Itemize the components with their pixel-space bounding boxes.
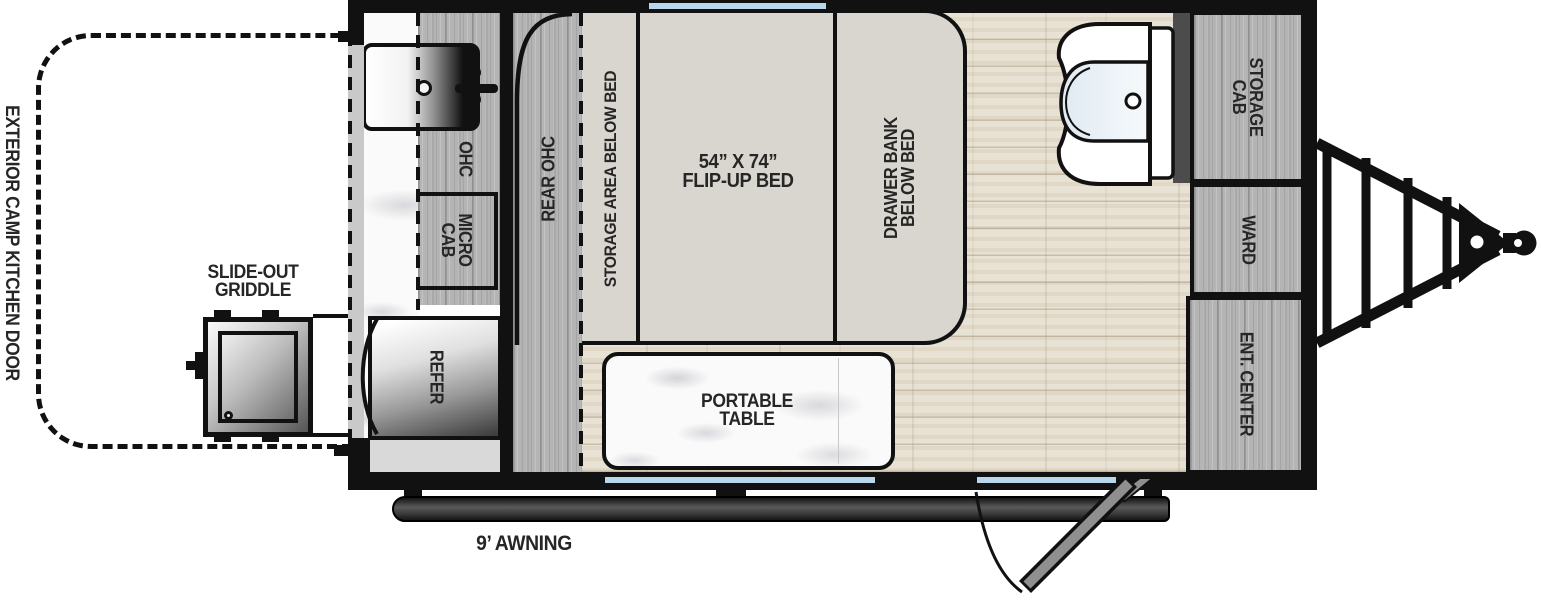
refer-label: REFER xyxy=(427,350,444,404)
bed-window xyxy=(647,1,828,11)
faucet-knob-bottom xyxy=(468,93,481,106)
entry-door-window xyxy=(975,475,1118,485)
rear-ohc-label: REAR OHC xyxy=(540,136,557,221)
ohc-label: OHC xyxy=(456,141,473,177)
tongue-jack xyxy=(1470,235,1485,250)
micro-cab-label: MICRO CAB xyxy=(439,213,473,266)
floorplan-canvas: EXTERIOR CAMP KITCHEN DOOR SLIDE-OUT GRI… xyxy=(0,0,1541,600)
hitch-coupler xyxy=(1512,231,1537,256)
bed-divider-left xyxy=(636,13,640,341)
storage-cab-label: STORAGE CAB xyxy=(1230,57,1264,136)
awning-bar xyxy=(392,496,1170,522)
slide-out-griddle-label: SLIDE-OUT GRIDDLE xyxy=(208,264,299,300)
rear-wall-interior xyxy=(500,13,513,472)
exterior-camp-kitchen-door-label: EXTERIOR CAMP KITCHEN DOOR xyxy=(2,105,20,381)
awning-label: 9’ AWNING xyxy=(476,534,572,554)
griddle-knob xyxy=(224,411,233,420)
ent-center-label: ENT. CENTER xyxy=(1237,332,1254,437)
griddle-inner-door xyxy=(218,331,298,423)
rear-ohc-cabinet xyxy=(513,13,582,472)
bed-divider-right xyxy=(833,13,837,341)
table-seam xyxy=(838,358,839,464)
portable-table-label: PORTABLE TABLE xyxy=(701,393,793,429)
front-wall xyxy=(1303,0,1317,490)
storage-area-below-bed-label: STORAGE AREA BELOW BED xyxy=(603,71,619,287)
dinette-window xyxy=(603,475,877,485)
faucet-knob-top xyxy=(468,66,481,79)
counter-dashed-line xyxy=(416,13,420,310)
ward-label: WARD xyxy=(1239,215,1256,264)
tongue-tip xyxy=(1459,203,1509,283)
slide-out-griddle xyxy=(203,317,313,437)
bed-dashed-line xyxy=(579,13,583,472)
trailer-tongue xyxy=(1317,143,1537,343)
top-wall xyxy=(348,0,1317,13)
entry-step-area xyxy=(363,440,500,472)
griddle-handle-post xyxy=(195,352,204,379)
faucet-bar xyxy=(455,84,498,93)
sidewall-dashed-line xyxy=(348,33,352,449)
flip-up-bed-label: 54” X 74” FLIP-UP BED xyxy=(682,153,793,191)
drawer-bank-label: DRAWER BANK BELOW BED xyxy=(883,117,917,239)
